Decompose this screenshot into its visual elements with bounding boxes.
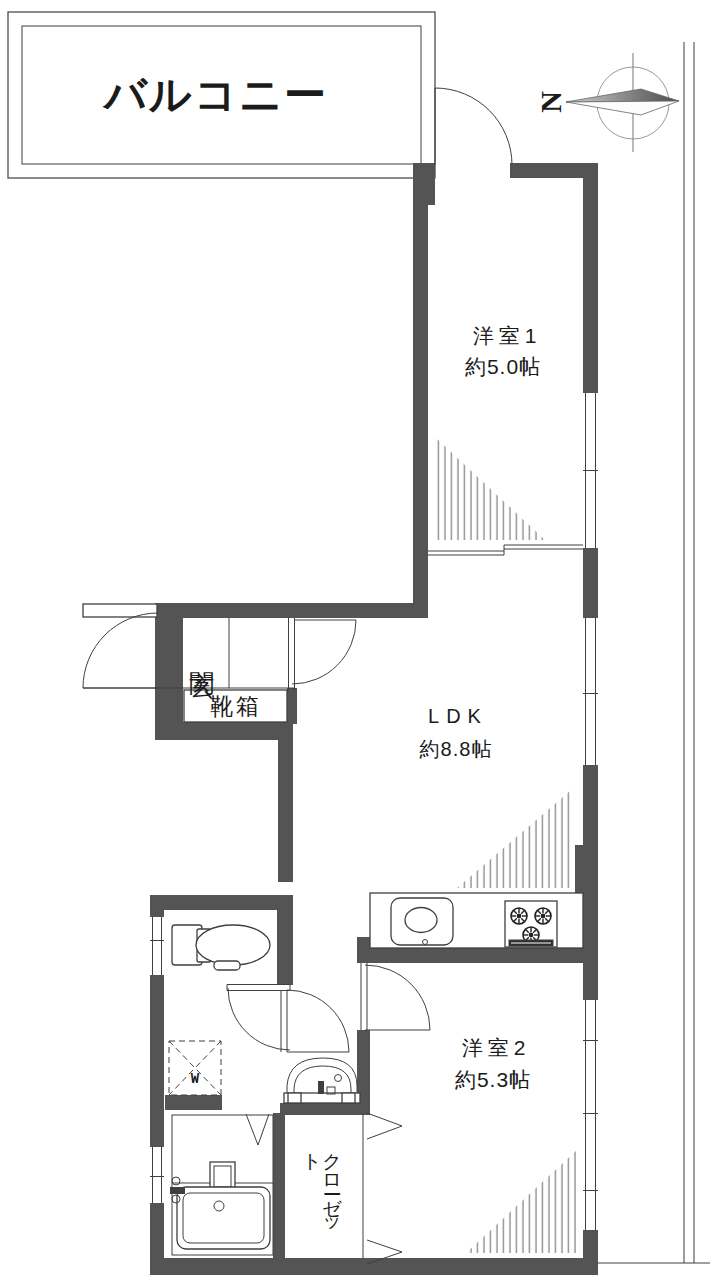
faucet-icon: [318, 1081, 324, 1094]
bathtub: [177, 1187, 270, 1249]
floor-plan-drawing: [0, 0, 713, 1280]
toilet-door-frame: [227, 985, 290, 991]
room2-size-label: 約5.3帖: [455, 1069, 531, 1091]
compass-needle-icon: [566, 89, 679, 102]
bath-faucet-icon: [170, 1187, 185, 1194]
toilet-fixture: [172, 925, 270, 970]
floor-plan: バルコニー 洋室1 約5.0帖 LDK 約8.8帖 洋室2 約5.3帖 玄関 靴…: [0, 0, 713, 1280]
room2-door-arc: [365, 965, 430, 1030]
room1-size-label: 約5.0帖: [465, 356, 541, 378]
washer-pan: [169, 1041, 221, 1095]
washroom-door-arc: [287, 990, 349, 1052]
bathroom-folding-door: [246, 1114, 269, 1145]
room1-name-label: 洋室1: [473, 325, 542, 347]
hall-door-arc: [292, 620, 356, 684]
ldk-name-label: LDK: [428, 706, 488, 727]
ldk-size-label: 約8.8帖: [420, 739, 493, 760]
room2-name-label: 洋室2: [462, 1037, 531, 1059]
balcony-label: バルコニー: [104, 73, 328, 117]
balcony-door-arc: [435, 88, 512, 165]
shoe-box-label: 靴箱: [210, 694, 262, 718]
compass: [566, 53, 679, 152]
closet-door-mark-top: [367, 1113, 402, 1139]
entrance-door-opening: [83, 604, 157, 617]
kitchen-fixtures: [370, 893, 583, 948]
sliding-door-partition: [428, 545, 583, 555]
entrance-floor-lines: [83, 618, 295, 722]
entrance-door-arc: [83, 613, 158, 688]
bathroom-fixtures: [170, 1115, 273, 1255]
sloped-ceiling-hatches: [435, 437, 578, 1253]
closet-front: [363, 1113, 402, 1264]
washer-label: W: [191, 1072, 199, 1087]
closet-label: クローゼット: [302, 1139, 342, 1233]
washbasin-fixture: [284, 1058, 360, 1103]
site-boundary-lines: [598, 42, 710, 1263]
north-label: N: [535, 91, 567, 113]
